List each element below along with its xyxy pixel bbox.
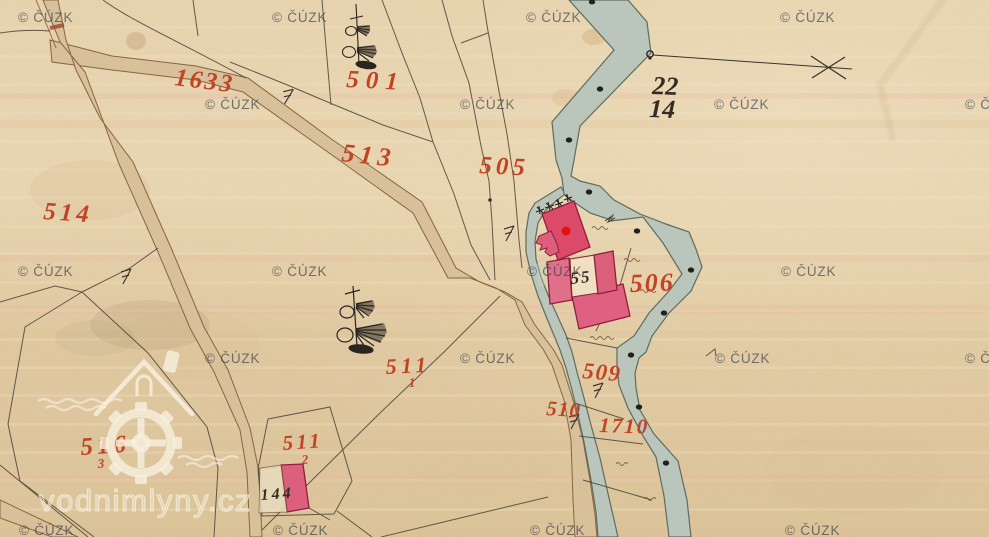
svg-text:© ČÚZK: © ČÚZK	[965, 97, 989, 112]
svg-text:© ČÚZK: © ČÚZK	[965, 351, 989, 366]
svg-text:1710: 1710	[599, 413, 650, 439]
svg-text:506: 506	[629, 267, 675, 298]
svg-text:© ČÚZK: © ČÚZK	[460, 97, 515, 112]
svg-text:1: 1	[408, 375, 415, 390]
svg-text:© ČÚZK: © ČÚZK	[460, 351, 515, 366]
svg-text:© ČÚZK: © ČÚZK	[273, 523, 328, 537]
svg-text:© ČÚZK: © ČÚZK	[785, 523, 840, 537]
svg-text:514: 514	[43, 198, 94, 228]
svg-text:509: 509	[582, 358, 623, 386]
svg-text:© ČÚZK: © ČÚZK	[714, 97, 769, 112]
svg-text:© ČÚZK: © ČÚZK	[19, 523, 74, 537]
svg-text:© ČÚZK: © ČÚZK	[526, 10, 581, 25]
svg-text:© ČÚZK: © ČÚZK	[205, 97, 260, 112]
svg-text:144: 144	[260, 485, 294, 504]
svg-text:© ČÚZK: © ČÚZK	[18, 10, 73, 25]
svg-text:505: 505	[479, 152, 530, 182]
svg-text:© ČÚZK: © ČÚZK	[527, 264, 582, 279]
svg-text:501: 501	[346, 66, 406, 96]
svg-text:513: 513	[340, 138, 397, 172]
svg-text:510: 510	[546, 396, 582, 422]
svg-text:© ČÚZK: © ČÚZK	[272, 10, 327, 25]
svg-text:14: 14	[649, 94, 676, 124]
svg-text:© ČÚZK: © ČÚZK	[780, 10, 835, 25]
svg-text:© ČÚZK: © ČÚZK	[272, 264, 327, 279]
svg-text:© ČÚZK: © ČÚZK	[715, 351, 770, 366]
svg-text:vodnimlyny.cz: vodnimlyny.cz	[39, 483, 252, 518]
svg-text:© ČÚZK: © ČÚZK	[781, 264, 836, 279]
svg-text:© ČÚZK: © ČÚZK	[205, 351, 260, 366]
svg-text:© ČÚZK: © ČÚZK	[18, 264, 73, 279]
svg-text:© ČÚZK: © ČÚZK	[530, 523, 585, 537]
